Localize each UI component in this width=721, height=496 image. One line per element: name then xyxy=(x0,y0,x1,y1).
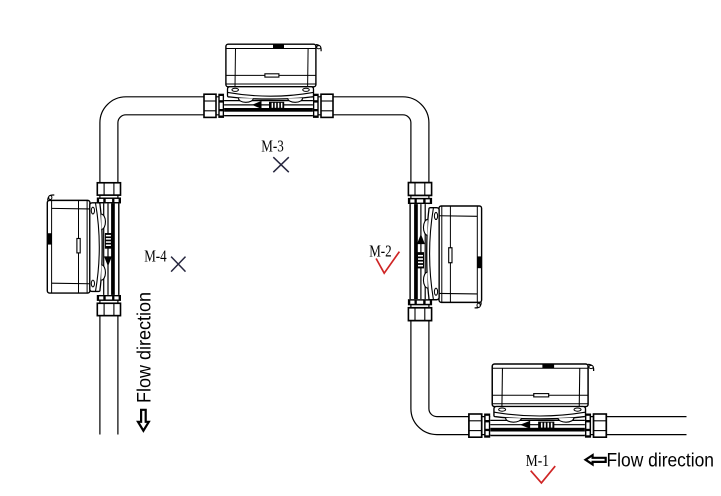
svg-text:M-3: M-3 xyxy=(261,136,284,155)
svg-text:Flow direction: Flow direction xyxy=(607,451,715,472)
svg-text:Flow direction: Flow direction xyxy=(135,292,156,403)
svg-text:M-1: M-1 xyxy=(526,451,549,470)
svg-text:M-2: M-2 xyxy=(369,241,392,260)
svg-text:M-4: M-4 xyxy=(144,246,167,265)
